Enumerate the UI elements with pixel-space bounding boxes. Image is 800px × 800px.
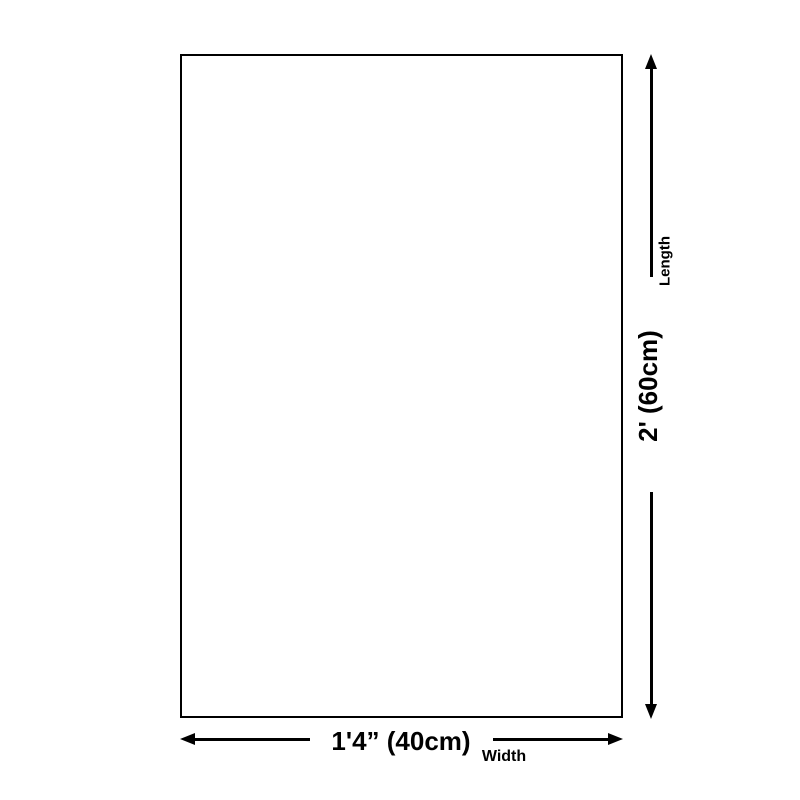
length-arrow-bottom-line <box>650 492 653 706</box>
width-axis-label: Width <box>482 749 526 765</box>
length-arrow-top-line <box>650 66 653 277</box>
length-axis-label: Length <box>658 236 673 286</box>
length-measurement-label: 2' (60cm) <box>635 330 661 442</box>
arrow-down-icon <box>645 704 657 719</box>
width-measurement-label: 1'4” (40cm) <box>331 728 470 754</box>
arrow-right-icon <box>608 733 623 745</box>
width-arrow-left-line <box>193 738 310 741</box>
product-outline <box>180 54 623 718</box>
product-dimension-diagram: Length 2' (60cm) 1'4” (40cm) Width <box>0 0 800 800</box>
width-arrow-right-line <box>493 738 610 741</box>
